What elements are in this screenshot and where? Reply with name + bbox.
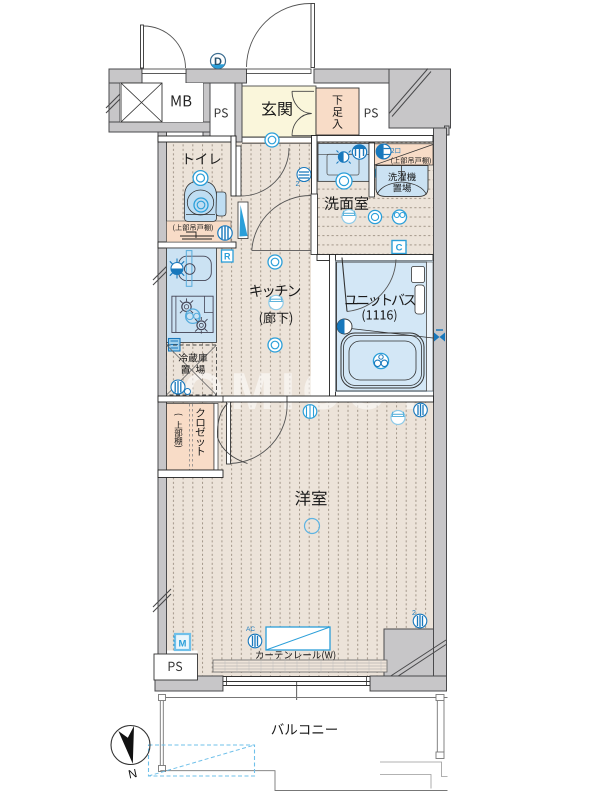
svg-text:M: M	[179, 639, 187, 650]
svg-text:2: 2	[296, 181, 300, 188]
svg-text:AC: AC	[246, 626, 255, 633]
svg-text:C: C	[396, 243, 403, 254]
svg-text:D: D	[214, 56, 222, 68]
svg-text:R: R	[224, 252, 231, 262]
